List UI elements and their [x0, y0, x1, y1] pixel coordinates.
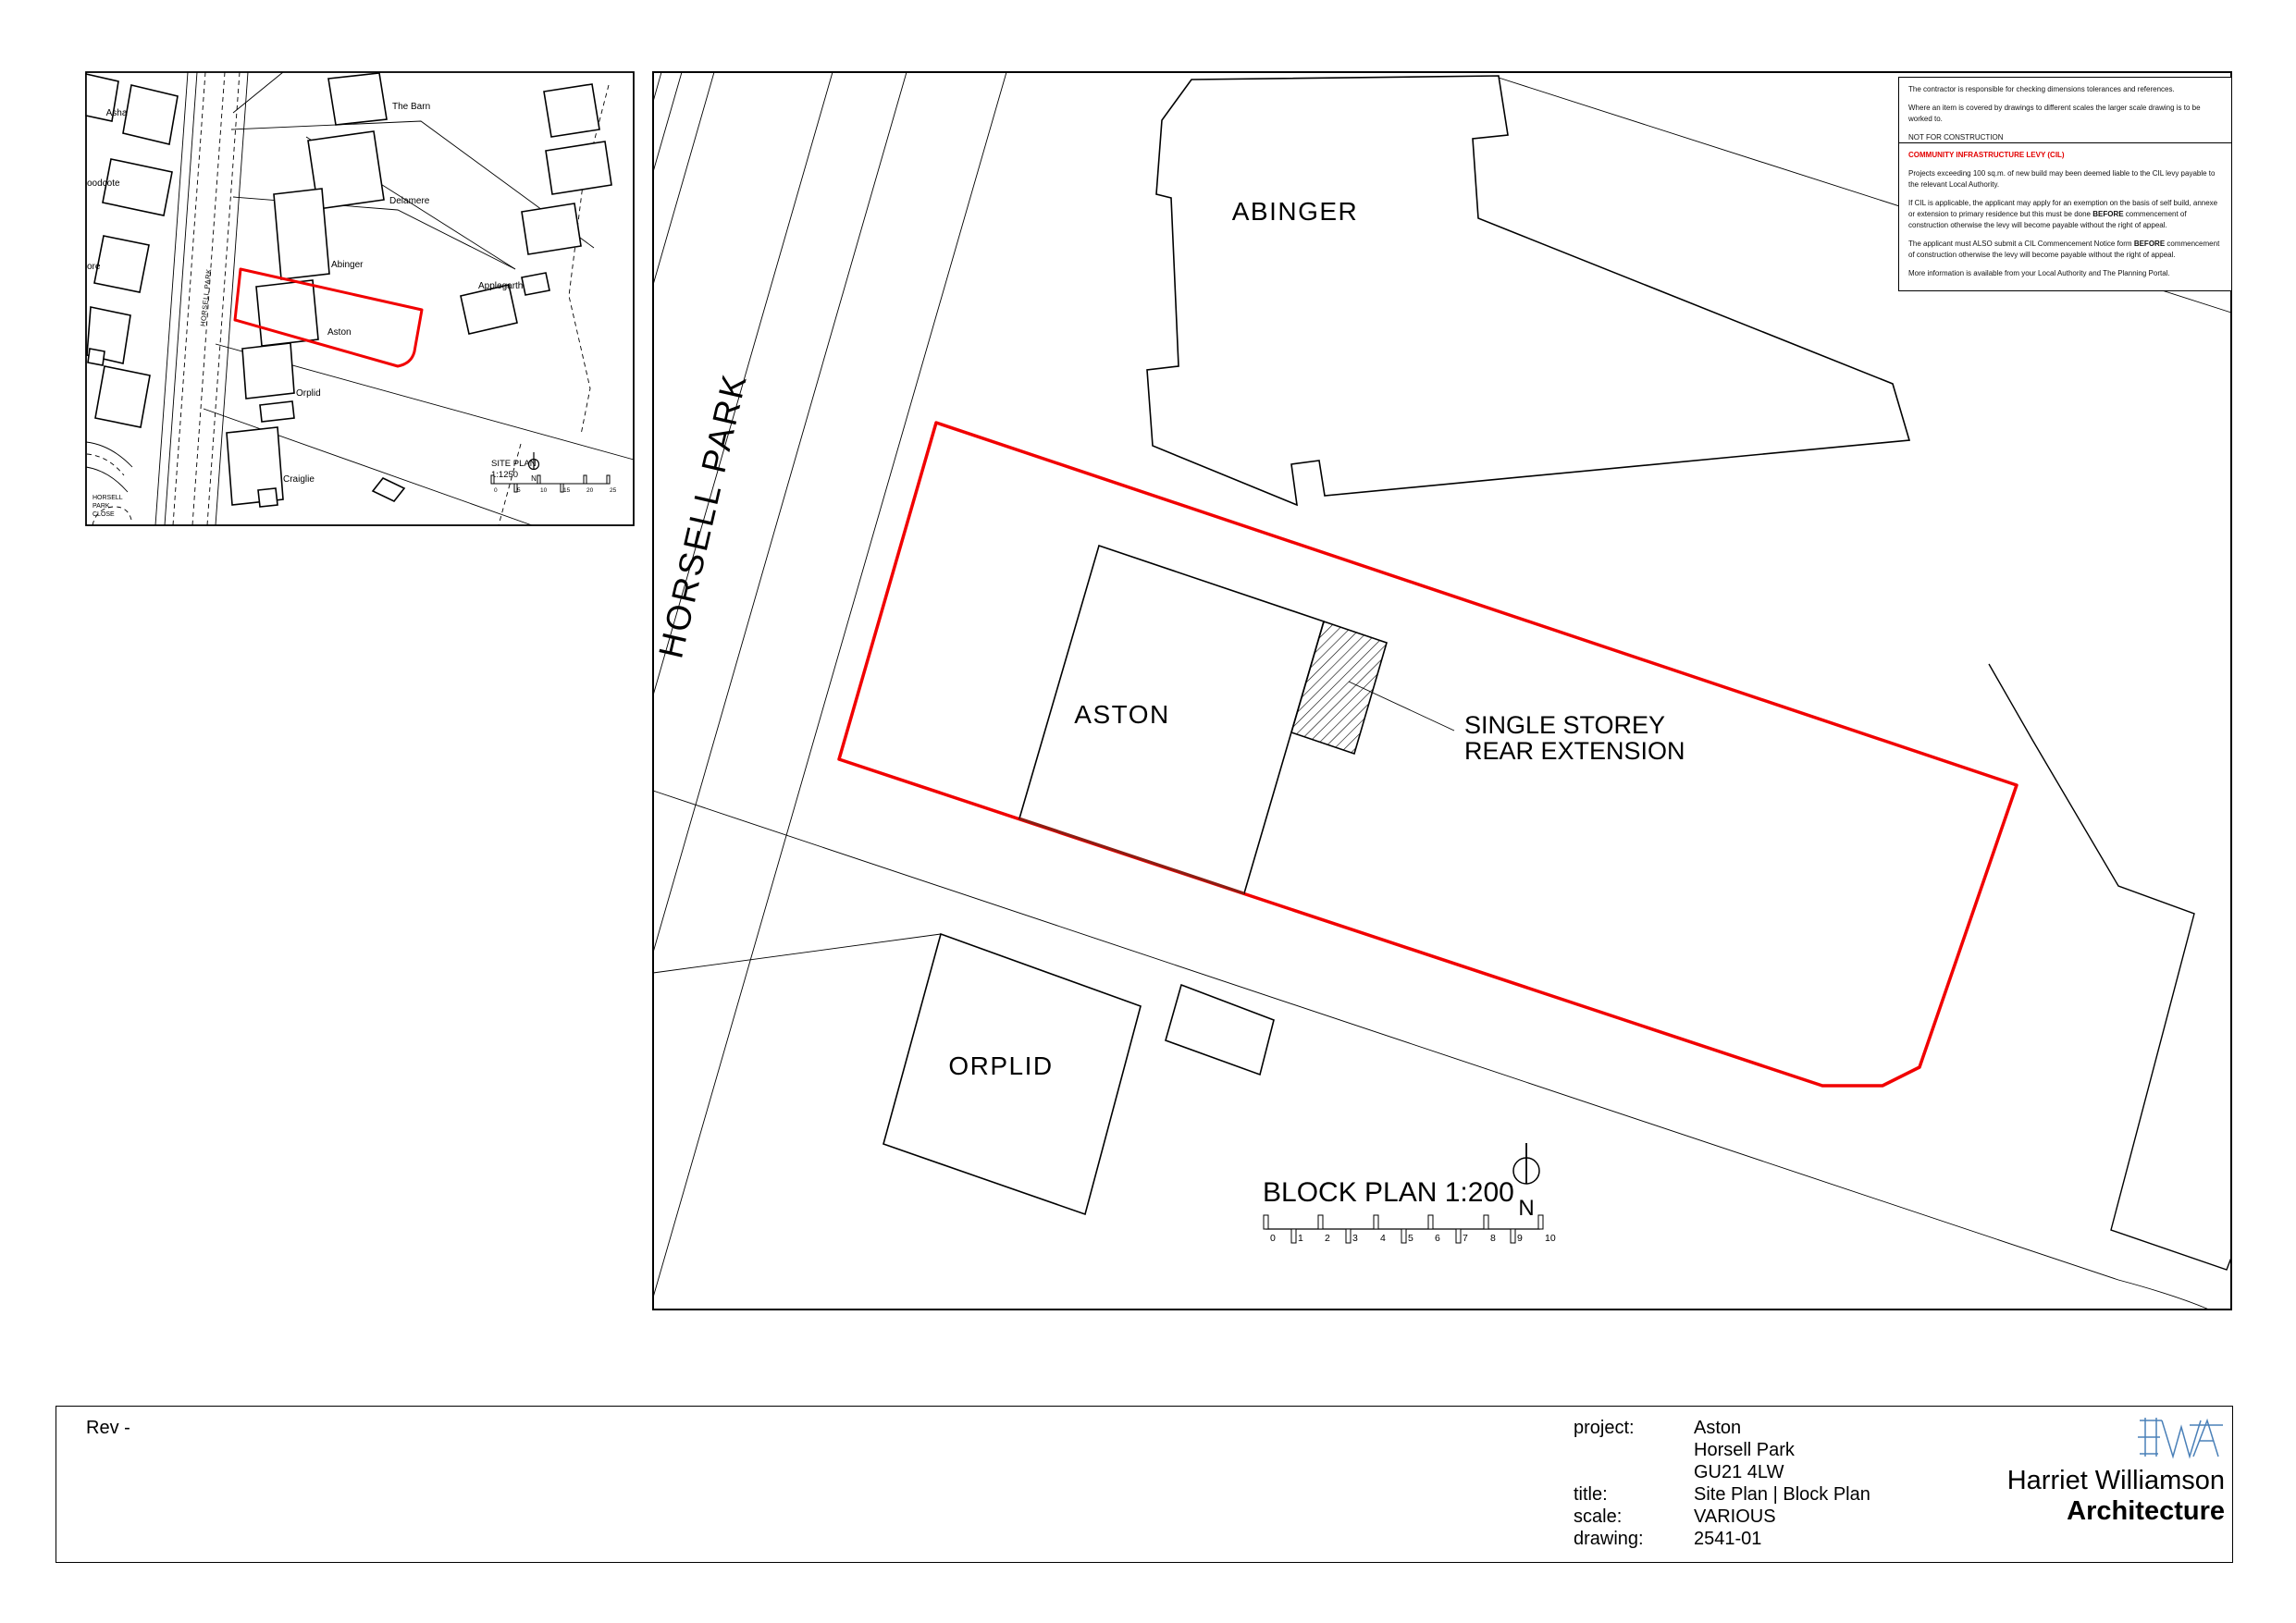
cil-p2-bold: BEFORE: [2092, 210, 2123, 218]
inset-tick-20: 20: [586, 487, 594, 494]
title-block-fields: project: Aston Horsell Park GU21 4LW tit…: [1574, 1417, 1870, 1550]
project-value-line1: Aston: [1694, 1417, 1741, 1439]
hwa-logo-icon: [2129, 1412, 2225, 1464]
inset-label-abinger: Abinger: [331, 260, 364, 270]
block-plan-title: BLOCK PLAN 1:200: [1263, 1177, 1514, 1208]
inset-label-the-barn: The Barn: [392, 102, 430, 112]
inset-label-craiglie: Craiglie: [283, 474, 315, 485]
scale-tick-1: 1: [1298, 1233, 1303, 1244]
scale-label: scale:: [1574, 1506, 1694, 1528]
inset-tick-10: 10: [540, 487, 548, 494]
cil-notes: COMMUNITY INFRASTRUCTURE LEVY (CIL) Proj…: [1899, 143, 2231, 279]
north-label: N: [1518, 1196, 1534, 1221]
inset-label-aston: Aston: [327, 327, 352, 338]
field-project: project: Aston: [1574, 1417, 1870, 1439]
cil-heading: COMMUNITY INFRASTRUCTURE LEVY (CIL): [1908, 150, 2222, 161]
scale-tick-8: 8: [1490, 1233, 1496, 1244]
extension-annotation-line2: REAR EXTENSION: [1464, 737, 1685, 765]
cil-p3-bold: BEFORE: [2134, 240, 2165, 248]
inset-label-orplid: Orplid: [296, 388, 321, 399]
inset-close-label-2: PARK: [93, 503, 110, 510]
cil-paragraph-2: If CIL is applicable, the applicant may …: [1908, 198, 2222, 231]
inset-close-label-3: CLOSE: [93, 511, 115, 518]
scale-tick-9: 9: [1517, 1233, 1523, 1244]
inset-tick-25: 25: [610, 487, 617, 494]
cil-p3-pre: The applicant must ALSO submit a CIL Com…: [1908, 240, 2134, 248]
field-title: title: Site Plan | Block Plan: [1574, 1483, 1870, 1506]
inset-label-asha: Asha: [106, 108, 128, 118]
extension-annotation-line1: SINGLE STOREY: [1464, 711, 1665, 739]
inset-close-label-1: HORSELL: [93, 495, 123, 501]
site-plan-inset: Asha The Barn Delamere oodcote Abinger o…: [86, 72, 634, 525]
abinger-label: ABINGER: [1232, 197, 1359, 226]
inset-label-ore: ore: [87, 262, 101, 272]
inset-label-applegarth: Applegarth: [478, 281, 523, 291]
field-scale: scale: VARIOUS: [1574, 1506, 1870, 1528]
architecture-firm-block: Harriet Williamson Architecture: [1910, 1412, 2225, 1527]
orplid-label: ORPLID: [948, 1051, 1053, 1080]
project-value-line3: GU21 4LW: [1694, 1461, 1784, 1483]
revision-label: Rev -: [86, 1418, 130, 1439]
title-value: Site Plan | Block Plan: [1694, 1483, 1870, 1506]
title-label: title:: [1574, 1483, 1694, 1506]
firm-discipline: Architecture: [1910, 1495, 2225, 1527]
firm-name: Harriet Williamson: [1910, 1466, 2225, 1495]
scale-tick-0: 0: [1270, 1233, 1276, 1244]
scale-tick-10: 10: [1545, 1233, 1556, 1244]
scale-value: VARIOUS: [1694, 1506, 1776, 1528]
inset-tick-15: 15: [563, 487, 571, 494]
note-scales: Where an item is covered by drawings to …: [1908, 103, 2222, 125]
drawing-sheet: Asha The Barn Delamere oodcote Abinger o…: [0, 0, 2296, 1623]
field-project-line3: GU21 4LW: [1574, 1461, 1870, 1483]
general-notes: The contractor is responsible for checki…: [1899, 78, 2231, 143]
scale-tick-4: 4: [1380, 1233, 1386, 1244]
inset-label-woodcote: oodcote: [87, 178, 120, 189]
title-block: Rev - project: Aston Horsell Park GU21 4…: [56, 1406, 2233, 1563]
drawing-value: 2541-01: [1694, 1528, 1761, 1550]
cil-paragraph-1: Projects exceeding 100 sq.m. of new buil…: [1908, 168, 2222, 191]
inset-scale: 1:1250: [491, 470, 518, 480]
scale-tick-6: 6: [1435, 1233, 1440, 1244]
cil-paragraph-4: More information is available from your …: [1908, 268, 2222, 279]
inset-tick-5: 5: [517, 487, 521, 494]
drawing-label: drawing:: [1574, 1528, 1694, 1550]
scale-tick-7: 7: [1463, 1233, 1468, 1244]
note-contractor: The contractor is responsible for checki…: [1908, 84, 2222, 95]
scale-tick-3: 3: [1352, 1233, 1358, 1244]
inset-label-delamere: Delamere: [389, 196, 430, 206]
scale-tick-2: 2: [1325, 1233, 1330, 1244]
project-label: project:: [1574, 1417, 1694, 1439]
inset-tick-0: 0: [494, 487, 498, 494]
cil-paragraph-3: The applicant must ALSO submit a CIL Com…: [1908, 239, 2222, 261]
project-value-line2: Horsell Park: [1694, 1439, 1795, 1461]
inset-north-label: N: [531, 474, 537, 483]
aston-label: ASTON: [1074, 700, 1169, 729]
notes-panel: The contractor is responsible for checki…: [1898, 77, 2232, 291]
field-drawing: drawing: 2541-01: [1574, 1528, 1870, 1550]
note-not-for-construction: NOT FOR CONSTRUCTION: [1908, 132, 2222, 143]
scale-tick-5: 5: [1408, 1233, 1413, 1244]
field-project-line2: Horsell Park: [1574, 1439, 1870, 1461]
